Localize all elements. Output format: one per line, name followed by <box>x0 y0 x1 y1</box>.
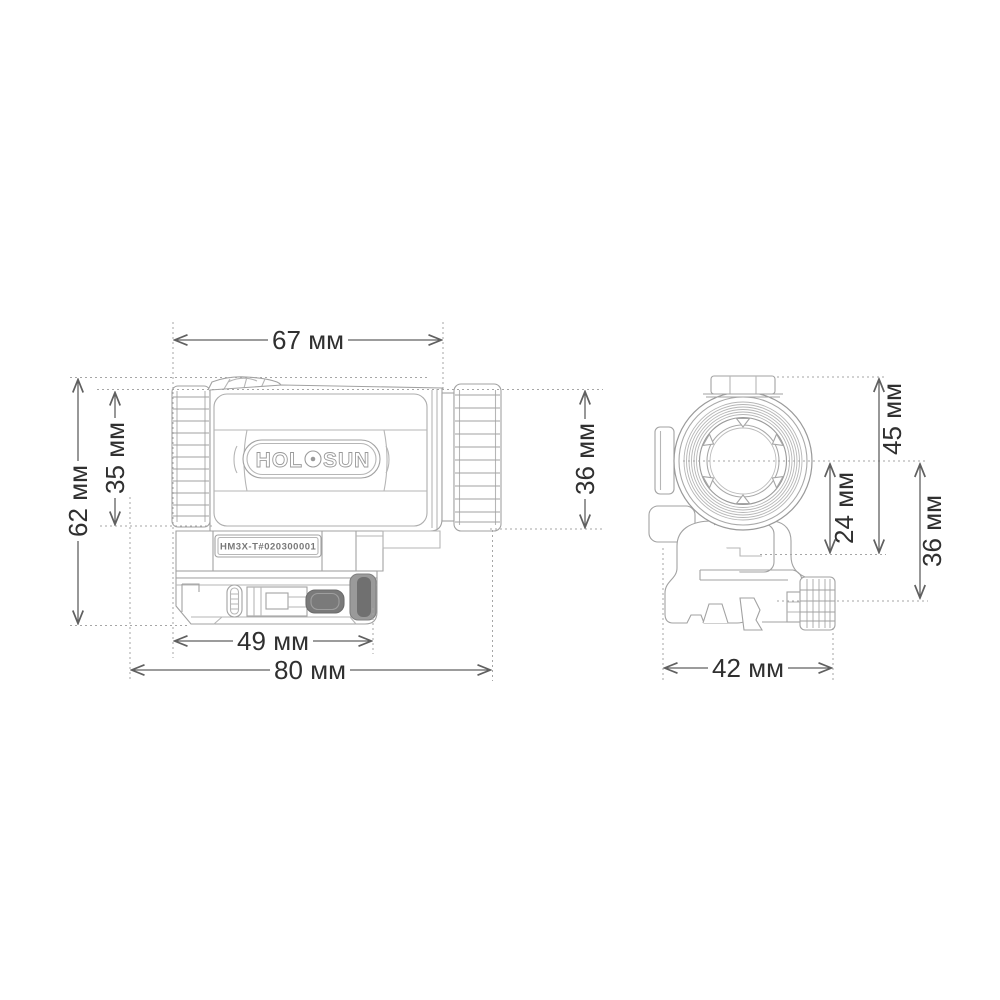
front-top-tab <box>703 376 783 397</box>
dim-label-80mm: 80 мм <box>274 655 346 685</box>
dim-label-49mm: 49 мм <box>237 626 309 656</box>
logo-text-left: HOL <box>256 449 303 472</box>
dimension-80mm: 80 мм <box>132 655 491 685</box>
serial-number-label: HM3X-T#020300001 <box>220 542 317 553</box>
holosun-logo: HOL SUN <box>234 440 389 478</box>
dim-label-24mm: 24 мм <box>829 472 859 544</box>
dim-label-36mm-side: 36 мм <box>570 423 600 495</box>
side-objective-ring <box>172 386 210 527</box>
technical-drawing-page: HOL SUN HM3X-T#020300001 <box>0 0 1000 1000</box>
dim-label-36mm-front: 36 мм <box>917 495 947 567</box>
side-view: HOL SUN HM3X-T#020300001 <box>172 377 501 624</box>
logo-text-right: SUN <box>323 449 370 472</box>
side-mount-base <box>176 571 377 624</box>
dimension-drawing: HOL SUN HM3X-T#020300001 <box>0 0 1000 1000</box>
dim-label-45mm: 45 мм <box>877 383 907 455</box>
dimension-42mm: 42 мм <box>665 653 832 683</box>
dimension-67mm: 67 мм <box>175 325 442 355</box>
dimension-49mm: 49 мм <box>175 626 372 656</box>
dimension-36mm-side: 36 мм <box>570 392 600 528</box>
dim-label-62mm: 62 мм <box>63 465 93 537</box>
dim-label-35mm: 35 мм <box>100 422 130 494</box>
front-view <box>649 376 835 630</box>
dimension-62mm: 62 мм <box>63 380 93 624</box>
side-eyepiece <box>442 384 501 531</box>
dimension-35mm: 35 мм <box>100 393 130 525</box>
side-serial-band: HM3X-T#020300001 <box>176 531 440 571</box>
dim-label-67mm: 67 мм <box>272 325 344 355</box>
dim-label-42mm: 42 мм <box>712 653 784 683</box>
dimension-24mm: 24 мм <box>829 464 859 553</box>
dimension-36mm-front: 36 мм <box>917 464 947 598</box>
front-mount-bracket <box>665 521 835 630</box>
dimension-45mm: 45 мм <box>877 379 907 553</box>
